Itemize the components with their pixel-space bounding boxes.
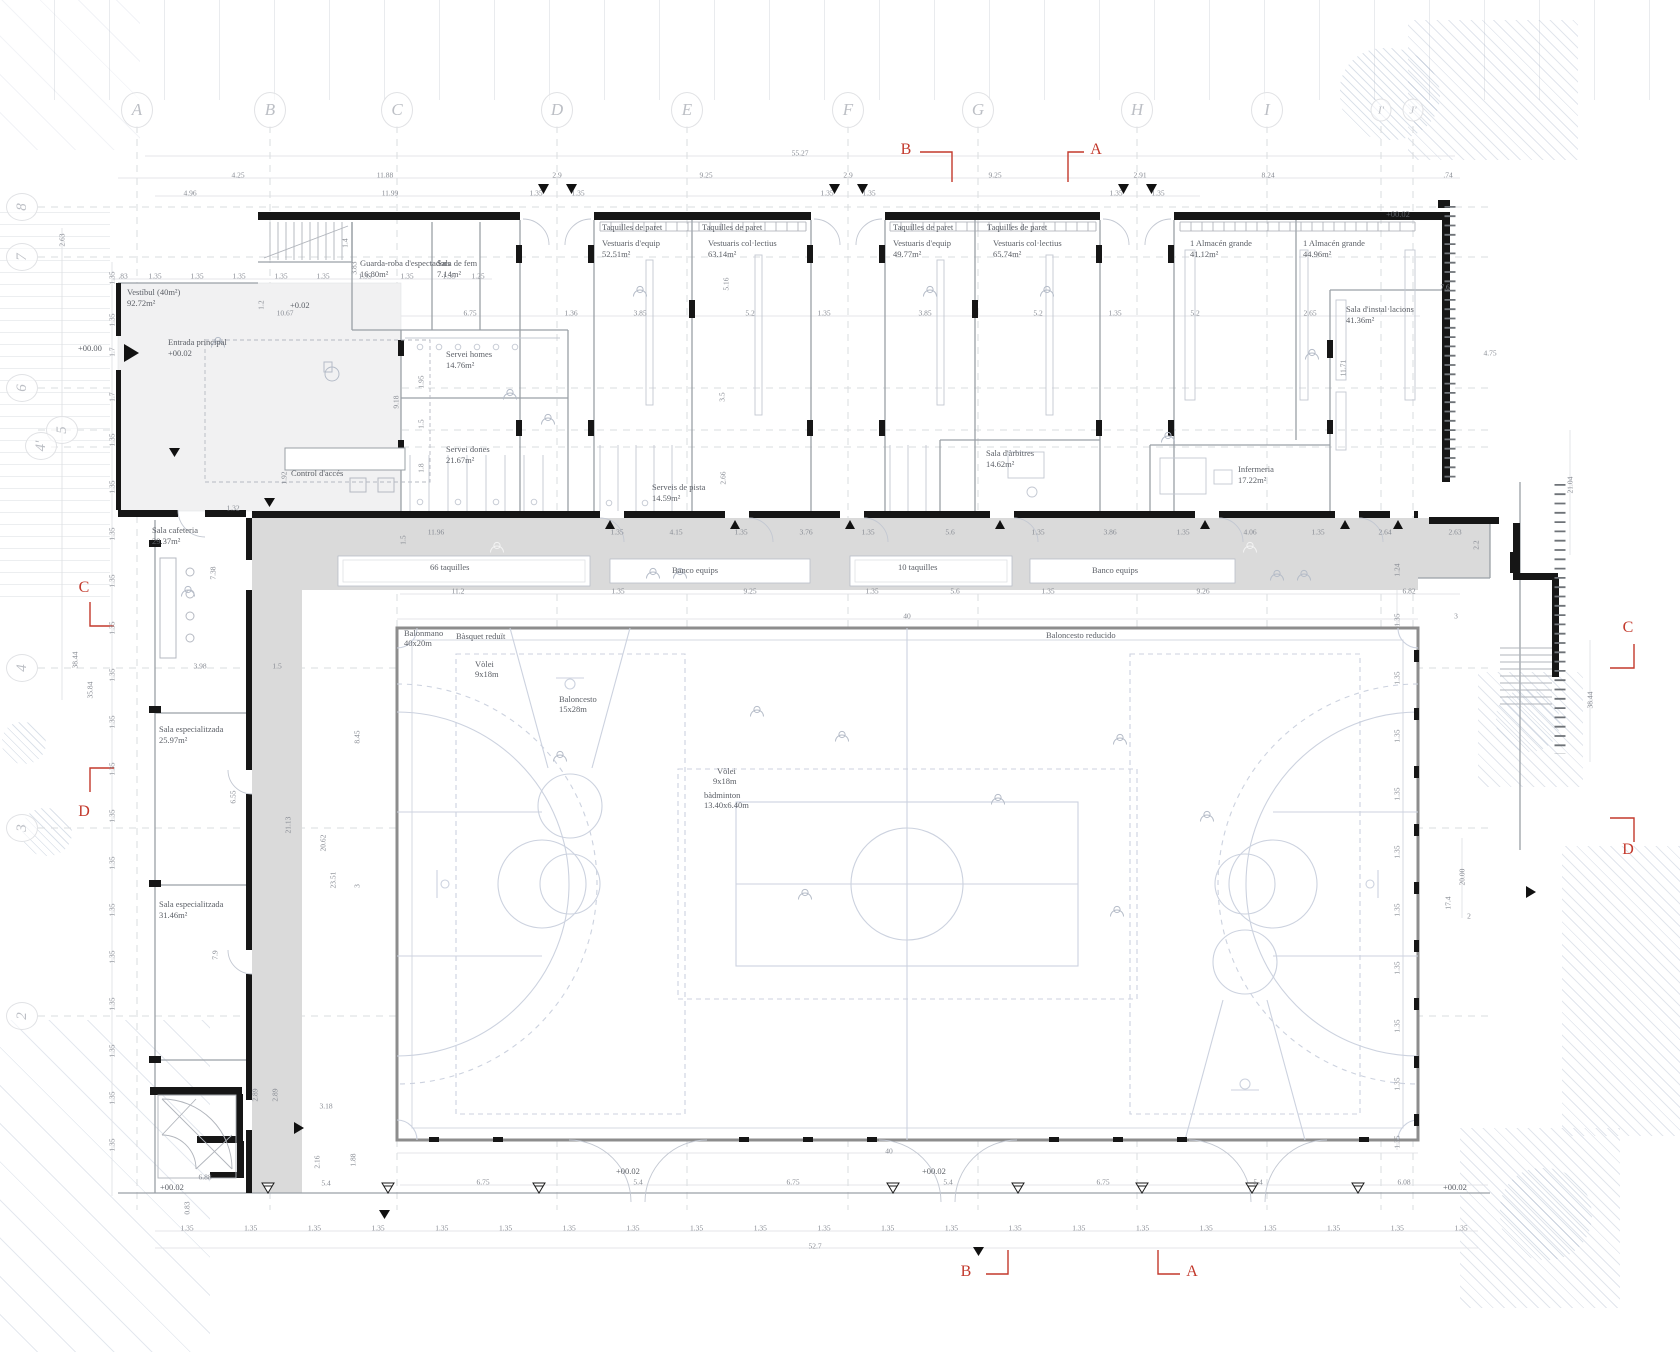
dimension-label: .74 — [1443, 171, 1452, 180]
dimension-label: 1.35 — [820, 189, 833, 198]
plan-label: +00.02 — [1443, 1182, 1467, 1192]
section-marker-b-top: B — [901, 141, 912, 159]
dimension-label: 2.16 — [313, 1155, 322, 1168]
dimension-label: 2.91 — [1133, 171, 1146, 180]
dimension-label: 1.35 — [861, 528, 874, 537]
dimension-label: 3.76 — [799, 528, 812, 537]
dimension-label: 1.35 — [358, 272, 371, 281]
room-label: 1 Almacén grande41.12m² — [1190, 238, 1252, 260]
dimension-label: 2.89 — [251, 1088, 260, 1101]
dimension-label: 1.35 — [1391, 1224, 1404, 1233]
dimension-label: 11.71 — [1339, 360, 1348, 377]
dimension-label: 1.7 — [108, 392, 117, 401]
plan-label: +00.02 — [160, 1182, 184, 1192]
dimension-label: 1.35 — [499, 1224, 512, 1233]
dimension-label: 1.35 — [108, 527, 117, 540]
vestibule-fill — [118, 283, 401, 511]
dimension-label: 1.35 — [1393, 1135, 1402, 1148]
dimension-label: 1.35 — [1393, 787, 1402, 800]
dimension-label: 5.2 — [1033, 309, 1042, 318]
dimension-label: 9.25 — [743, 587, 756, 596]
dimension-label: 1.35 — [108, 480, 117, 493]
dimension-label: 1.35 — [1393, 671, 1402, 684]
dimension-label: 3 — [353, 884, 362, 888]
dimension-label: 38.44 — [71, 652, 80, 669]
section-marker-a-bottom: A — [1186, 1263, 1198, 1281]
grid-letter-bubble: J' — [1403, 99, 1424, 122]
room-label: Sala d'instal·lacions41.36m² — [1346, 304, 1414, 326]
dimension-label: 8.45 — [353, 730, 362, 743]
dimension-label: 5.2 — [1190, 309, 1199, 318]
dimension-label: 2.89 — [271, 1088, 280, 1101]
dimension-label: 1.5 — [417, 419, 426, 428]
section-marker-b-bottom: B — [961, 1263, 972, 1281]
section-marker-c-right: C — [1623, 619, 1634, 637]
dimension-label: 1.35 — [1311, 528, 1324, 537]
dimension-label: 7.9 — [211, 950, 220, 959]
plan-linework — [0, 0, 1680, 1352]
dimension-label: 1.35 — [610, 528, 623, 537]
dimension-label: 1.35 — [690, 1224, 703, 1233]
dimension-label: 1.32 — [226, 504, 239, 513]
dimension-label: 3.85 — [633, 309, 646, 318]
dimension-label: 1.35 — [1393, 961, 1402, 974]
grid-letter-bubble: I — [1251, 92, 1283, 128]
dimension-label: 3.85 — [918, 309, 931, 318]
dimension-label: 2.65 — [1303, 309, 1316, 318]
plan-label: 9x18m — [713, 776, 737, 786]
dimension-label: 5.6 — [945, 528, 954, 537]
room-label: Entrada principal+00.02 — [168, 337, 227, 359]
dimension-label: 1.35 — [108, 433, 117, 446]
dimension-label: 1.5 — [272, 662, 281, 671]
dimension-label: 2.9 — [843, 171, 852, 180]
dimension-label: 4.15 — [669, 528, 682, 537]
dimension-label: 1.35 — [1176, 528, 1189, 537]
dimension-label: 1.35 — [108, 950, 117, 963]
dimension-label: 1.35 — [108, 903, 117, 916]
grid-letter-bubble: I' — [1371, 99, 1392, 122]
room-label: Vestuaris d'equip49.77m² — [893, 238, 951, 260]
plan-label: Taquilles de paret — [702, 222, 762, 232]
dimension-label: 1.35 — [1393, 1019, 1402, 1032]
plan-label: 9x18m — [475, 669, 499, 679]
dimension-label: 1.8 — [417, 463, 426, 472]
dimension-label: 1.36 — [564, 309, 577, 318]
dimension-label: 1.35 — [817, 309, 830, 318]
plan-label: +00.02 — [922, 1166, 946, 1176]
dimension-label: 1.35 — [108, 762, 117, 775]
dimension-label: 1.35 — [1041, 587, 1054, 596]
dimension-label: 17.4 — [1444, 896, 1453, 909]
dimension-label: 6.75 — [1096, 1178, 1109, 1187]
plan-label: +00.02 — [1386, 209, 1410, 219]
dimension-label: 1.35 — [945, 1224, 958, 1233]
dimension-label: 1.35 — [1009, 1224, 1022, 1233]
dimension-label: 5.4 — [1253, 1178, 1262, 1187]
grid-number-bubble: 6 — [6, 374, 38, 402]
dimension-label: 1.35 — [1109, 189, 1122, 198]
dimension-label: 6.55 — [229, 790, 238, 803]
floor-plan-drawing: ABCDEFGHII'J' 87654'432 Vestíbul (40m²)9… — [0, 0, 1680, 1352]
grid-letter-bubble: E — [671, 92, 703, 128]
dimension-label: 3.5 — [718, 392, 727, 401]
dimension-label: 5.16 — [722, 277, 731, 290]
dimension-label: 3.98 — [193, 662, 206, 671]
dimension-label: 1.35 — [190, 272, 203, 281]
dimension-label: 2.63 — [1448, 528, 1461, 537]
plan-label: Banco equips — [1092, 565, 1138, 575]
dimension-label: 1.35 — [734, 528, 747, 537]
plan-label: 10 taquilles — [898, 562, 937, 572]
dimension-label: 1.35 — [108, 668, 117, 681]
plan-label: Baloncesto reducido — [1046, 630, 1116, 640]
dimension-label: 1.35 — [1108, 309, 1121, 318]
room-label: Vestíbul (40m²)92.72m² — [127, 287, 180, 309]
plan-label: 40x20m — [404, 638, 432, 648]
dimension-label: 1.35 — [232, 272, 245, 281]
dimension-label: 38.44 — [1586, 692, 1595, 709]
dimension-label: 6.75 — [786, 1178, 799, 1187]
grid-number-bubble: 7 — [6, 243, 38, 271]
dimension-label: 5.4 — [633, 1178, 642, 1187]
dimension-label: 1.35 — [571, 189, 584, 198]
plan-label: Banco equips — [672, 565, 718, 575]
dimension-label: 11.88 — [377, 171, 394, 180]
plan-label: +00.02 — [616, 1166, 640, 1176]
dimension-label: 2.63 — [58, 233, 67, 246]
grid-number-bubble: 4 — [6, 654, 38, 682]
door-symbols-bottom — [262, 1183, 1364, 1193]
dimension-label: 1.35 — [108, 271, 117, 284]
dimension-label: 1.35 — [372, 1224, 385, 1233]
dimension-label: 5.4 — [943, 1178, 952, 1187]
dimension-label: 1.35 — [754, 1224, 767, 1233]
room-label: 1 Almacén grande44.96m² — [1303, 238, 1365, 260]
dimension-label: 1.35 — [1393, 1077, 1402, 1090]
dimension-label: 1.35 — [1031, 528, 1044, 537]
dimension-label: 6.08 — [1397, 1178, 1410, 1187]
dimension-label: 1.4 — [341, 238, 350, 247]
dimension-label: 1.35 — [274, 272, 287, 281]
dimension-label: 6.88 — [198, 1173, 211, 1182]
dimension-label: 1.35 — [1200, 1224, 1213, 1233]
dimension-label: 1.95 — [417, 375, 426, 388]
grid-letter-bubble: F — [832, 92, 864, 128]
section-marker-d-right: D — [1622, 841, 1634, 859]
dimension-label: 1.35 — [1136, 1224, 1149, 1233]
dimension-label: 8.24 — [1261, 171, 1274, 180]
dimension-label: 3.18 — [319, 1102, 332, 1111]
dimension-label: 1.35 — [865, 587, 878, 596]
room-label: Vestuaris col·lectius63.14m² — [708, 238, 777, 260]
plan-label: 66 taquilles — [430, 562, 469, 572]
dimension-label: 1.35 — [1393, 845, 1402, 858]
dimension-label: 1.35 — [148, 272, 161, 281]
dimension-label: 2.2 — [1472, 540, 1481, 549]
room-label: Serveis de pista14.59m² — [652, 482, 705, 504]
plan-label: +00.00 — [78, 343, 102, 353]
dimension-label: 1.35 — [316, 272, 329, 281]
dimension-label: 1.35 — [308, 1224, 321, 1233]
dimension-label: 23.51 — [329, 872, 338, 889]
dimension-label: 1.35 — [1454, 1224, 1467, 1233]
dimension-label: 1.88 — [349, 1153, 358, 1166]
dimension-label: 2.64 — [1378, 528, 1391, 537]
plan-label: Taquilles de paret — [893, 222, 953, 232]
dimension-label: 1.35 — [1151, 189, 1164, 198]
dimension-label: 20.00 — [1458, 869, 1467, 886]
section-marker-d-left: D — [78, 803, 90, 821]
section-marker-c-left: C — [79, 579, 90, 597]
dimension-label: 1.35 — [108, 1138, 117, 1151]
dimension-label: 11.99 — [382, 189, 399, 198]
dimension-label: .83 — [118, 272, 127, 281]
room-label: Sala cafeteria29.37m² — [152, 525, 198, 547]
room-label: Sala especialitzada31.46m² — [159, 899, 223, 921]
dimension-label: 1.35 — [563, 1224, 576, 1233]
dimension-label: 4.75 — [1483, 349, 1496, 358]
grid-letter-bubble: C — [381, 92, 413, 128]
dimension-label: 20.62 — [319, 835, 328, 852]
plan-label: 13.40x6.40m — [704, 800, 749, 810]
dimension-label: 1.5 — [399, 535, 408, 544]
dimension-label: 21.13 — [284, 817, 293, 834]
dimension-label: 0.83 — [183, 1201, 192, 1214]
dimension-label: 1.24 — [1393, 563, 1402, 576]
grid-number-bubble: 8 — [6, 193, 38, 221]
room-label: Servei homes14.76m² — [446, 349, 492, 371]
dimension-label: 5.2 — [745, 309, 754, 318]
dimension-label: 9.18 — [392, 395, 401, 408]
grid-letter-bubble: A — [121, 92, 153, 128]
dimension-label: 3.86 — [1103, 528, 1116, 537]
dimension-label: 4.25 — [231, 171, 244, 180]
room-label: Sala d'àrbitres14.62m² — [986, 448, 1034, 470]
dimension-label: 1.25 — [471, 272, 484, 281]
dimension-label: 4.06 — [1243, 528, 1256, 537]
grid-letter-bubble: B — [254, 92, 286, 128]
dimension-label: 1.35 — [817, 1224, 830, 1233]
plan-label: Vòlei — [475, 659, 494, 669]
dimension-label: 1.92 — [280, 471, 289, 484]
dimension-label: 1.35 — [108, 1044, 117, 1057]
dimension-label: 1.35 — [244, 1224, 257, 1233]
dimension-label: 11.96 — [428, 528, 445, 537]
grid-letter-bubble: D — [541, 92, 573, 128]
dimension-label: 1.35 — [108, 809, 117, 822]
dimension-label: 1.35 — [108, 621, 117, 634]
dimension-label: 1.35 — [862, 189, 875, 198]
section-marker-a-top: A — [1090, 141, 1102, 159]
grid-number-bubble: 4' — [25, 432, 57, 460]
dimension-label: 1.35 — [108, 715, 117, 728]
dimension-label: 3.83 — [350, 261, 359, 274]
dimension-label: 52.7 — [808, 1242, 821, 1251]
dimension-label: 1.35 — [1393, 613, 1402, 626]
dimension-label: 1.35 — [1072, 1224, 1085, 1233]
dimension-label: 9.25 — [699, 171, 712, 180]
dimension-label: 6.75 — [476, 1178, 489, 1187]
grid-letter-bubble: G — [962, 92, 994, 128]
grid-letter-bubble: H — [1121, 92, 1153, 128]
dimension-label: 1.35 — [1263, 1224, 1276, 1233]
dimension-label: 7.38 — [209, 566, 218, 579]
dimension-label: 9.26 — [1196, 587, 1209, 596]
dimension-label: 1.35 — [400, 272, 413, 281]
dimension-label: 1.35 — [108, 313, 117, 326]
room-label: Vestuaris d'equip52.51m² — [602, 238, 660, 260]
dimension-label: 1.7 — [108, 347, 117, 356]
dimension-label: 1.35 — [1393, 729, 1402, 742]
dimension-label: 3 — [1454, 612, 1458, 621]
dimension-label: 4.96 — [183, 189, 196, 198]
room-label: Sala especialitzada25.97m² — [159, 724, 223, 746]
dimension-label: 10.67 — [277, 309, 294, 318]
room-label: Control d'accés — [291, 468, 343, 479]
dimension-label: 1.35 — [1393, 903, 1402, 916]
dimension-label: 21.04 — [1566, 477, 1575, 494]
dimension-label: 1.35 — [529, 189, 542, 198]
dimension-label: 1.35 — [108, 574, 117, 587]
dimension-label: 1.35 — [626, 1224, 639, 1233]
dimension-label: 1.35 — [108, 1091, 117, 1104]
plan-label: Baloncesto — [559, 694, 597, 704]
grid-number-bubble: 2 — [6, 1002, 38, 1030]
dimension-label: 6.75 — [463, 309, 476, 318]
dimension-label: 35.84 — [86, 682, 95, 699]
plan-label: 15x28m — [559, 704, 587, 714]
dimension-label: 1.35 — [108, 856, 117, 869]
dimension-label: 6.82 — [1402, 587, 1415, 596]
dimension-label: 2 — [1467, 912, 1471, 921]
room-label: Vestuaris col·lectius65.74m² — [993, 238, 1062, 260]
dimension-label: 1.35 — [611, 587, 624, 596]
grid-number-bubble: 3 — [6, 814, 38, 842]
dimension-label: 1.2 — [257, 300, 266, 309]
room-label: Infermeria17.22m² — [1238, 464, 1274, 486]
dimension-label: 2.9 — [552, 171, 561, 180]
plan-label: bàdminton — [704, 790, 740, 800]
plan-label: Vòlei — [717, 766, 736, 776]
dimension-label: 1.35 — [180, 1224, 193, 1233]
plan-label: Taquilles de paret — [602, 222, 662, 232]
dimension-label: 5.4 — [321, 1179, 330, 1188]
dimension-label: 1.35 — [881, 1224, 894, 1233]
dimension-label: 1.35 — [435, 1224, 448, 1233]
dimension-label: 5.6 — [950, 587, 959, 596]
plan-label: Bàsquet reduït — [456, 631, 505, 641]
plan-label: Balonmano — [404, 628, 443, 638]
dimension-label: 9.25 — [988, 171, 1001, 180]
dimension-label: 1.35 — [1327, 1224, 1340, 1233]
dimension-label: 1.35 — [108, 997, 117, 1010]
room-label: Servei dones21.67m² — [446, 444, 490, 466]
dimension-label: 40 — [903, 612, 911, 621]
dimension-label: 7.6 — [1440, 283, 1449, 292]
dimension-label: 2.66 — [719, 471, 728, 484]
dimension-label: 40 — [885, 1147, 893, 1156]
dimension-label: 11.2 — [452, 587, 465, 596]
dimension-label: 1.35 — [442, 272, 455, 281]
dimension-label: 55.27 — [792, 149, 809, 158]
plan-label: Taquilles de paret — [987, 222, 1047, 232]
